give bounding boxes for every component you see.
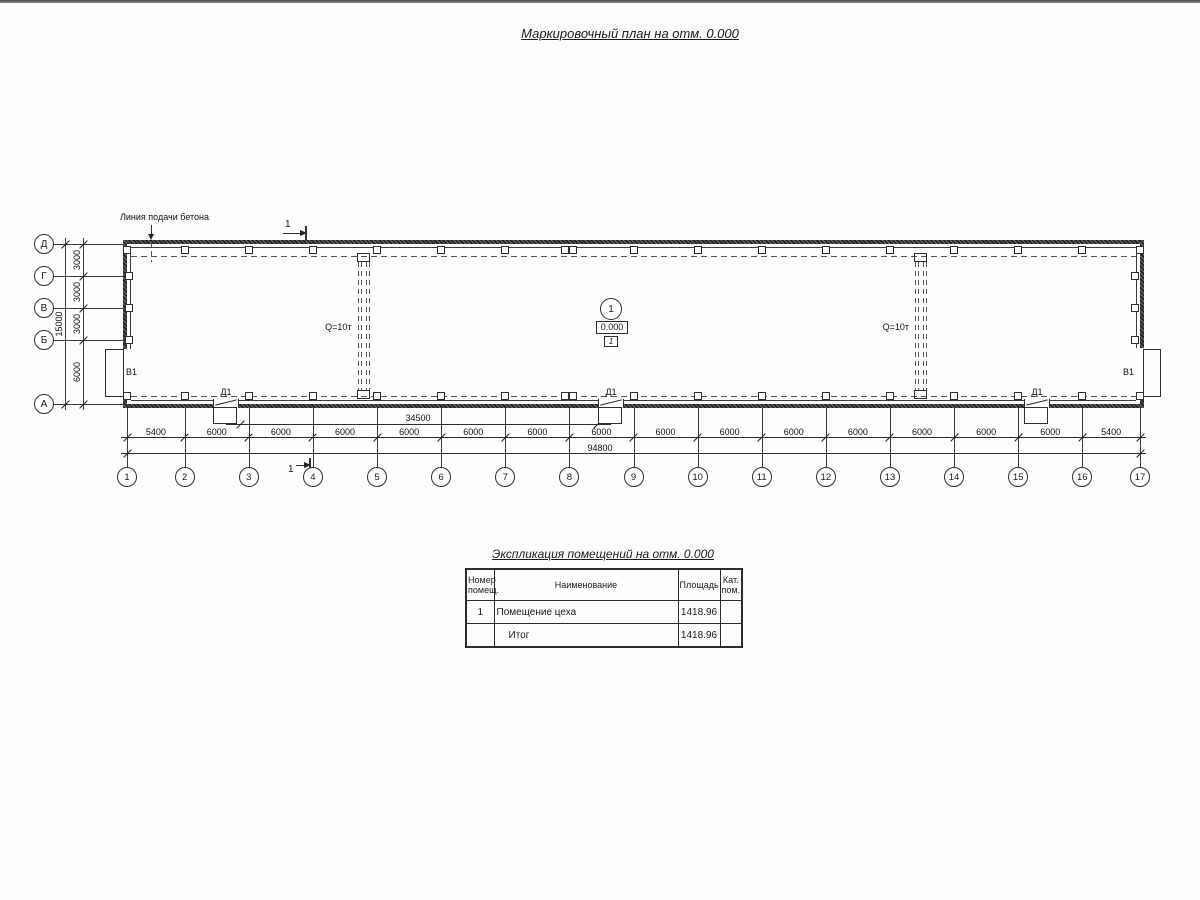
column-square bbox=[561, 246, 569, 254]
table-cell-category bbox=[720, 624, 742, 648]
column-square bbox=[886, 392, 894, 400]
column-square bbox=[561, 392, 569, 400]
door-porch bbox=[1024, 407, 1048, 424]
dim-text-doors: 34500 bbox=[388, 413, 448, 423]
column-square bbox=[373, 246, 381, 254]
axis-bubble-number: 7 bbox=[495, 467, 515, 487]
dim-line-doors bbox=[226, 424, 611, 425]
axis-bubble-number: 5 bbox=[367, 467, 387, 487]
table-row: Итог1418.96 bbox=[466, 624, 742, 648]
door-porch bbox=[598, 407, 622, 424]
axis-bubble-number: 4 bbox=[303, 467, 323, 487]
col-header-number: Номер помещ. bbox=[466, 569, 494, 601]
column-square bbox=[694, 246, 702, 254]
column-square-right-wall bbox=[1131, 272, 1139, 280]
door-jamb bbox=[623, 399, 624, 408]
crane-rail-top bbox=[131, 256, 1136, 257]
column-square bbox=[437, 246, 445, 254]
dim-text-total: 94800 bbox=[567, 443, 633, 453]
axis-bubble-number: 17 bbox=[1130, 467, 1150, 487]
dim-text-left: 3000 bbox=[72, 304, 82, 344]
concrete-line-arrow-head bbox=[148, 234, 154, 240]
crane-end-truck bbox=[914, 390, 927, 399]
column-square bbox=[758, 246, 766, 254]
explication-table: Номер помещ. Наименование Площадь Кат. п… bbox=[465, 568, 743, 648]
explication-title: Экспликация помещений на отм. 0.000 bbox=[465, 547, 741, 561]
concrete-line-dashed bbox=[151, 242, 152, 262]
door-jamb bbox=[238, 399, 239, 408]
crane-bridge-dashed bbox=[358, 262, 359, 390]
col-header-category: Кат. пом. bbox=[720, 569, 742, 601]
column-square bbox=[501, 246, 509, 254]
column-square bbox=[373, 392, 381, 400]
door-label: Д1 bbox=[206, 387, 246, 397]
crane-bridge-dashed bbox=[918, 262, 919, 390]
section-mark-bottom-label: 1 bbox=[288, 464, 294, 475]
axis-bubble-number: 10 bbox=[688, 467, 708, 487]
column-square bbox=[1078, 246, 1086, 254]
room-number-bubble: 1 bbox=[600, 298, 622, 320]
column-square bbox=[123, 246, 131, 254]
axis-bubble-number: 9 bbox=[624, 467, 644, 487]
crane-bridge-dashed bbox=[361, 262, 362, 390]
dim-text-bay: 6000 bbox=[774, 427, 814, 437]
column-square bbox=[123, 392, 131, 400]
axis-bubble-number: 16 bbox=[1072, 467, 1092, 487]
crane-label: Q=10т bbox=[859, 322, 909, 332]
crane-end-truck bbox=[914, 253, 927, 262]
dim-text-bay: 6000 bbox=[646, 427, 686, 437]
plan-title: Маркировочный план на отм. 0.000 bbox=[420, 26, 840, 41]
column-square bbox=[950, 246, 958, 254]
col-header-area: Площадь bbox=[678, 569, 720, 601]
column-square bbox=[309, 392, 317, 400]
wall-left bbox=[123, 240, 127, 349]
column-square bbox=[886, 246, 894, 254]
column-square bbox=[822, 246, 830, 254]
column-square bbox=[758, 392, 766, 400]
axis-line-letter bbox=[54, 340, 123, 341]
window-top-edge bbox=[0, 0, 1200, 3]
door-label: Д1 bbox=[1017, 387, 1057, 397]
column-square bbox=[694, 392, 702, 400]
table-cell-area: 1418.96 bbox=[678, 601, 720, 624]
gate-label-left: В1 bbox=[126, 367, 137, 377]
dim-text-bay: 6000 bbox=[581, 427, 621, 437]
column-square-left-wall bbox=[125, 272, 133, 280]
table-cell-category bbox=[720, 601, 742, 624]
dim-text-bay: 6000 bbox=[902, 427, 942, 437]
axis-bubble-number: 12 bbox=[816, 467, 836, 487]
door-porch bbox=[213, 407, 237, 424]
wall-bottom-inner-line bbox=[131, 400, 1136, 401]
table-cell-name: Итог bbox=[494, 624, 678, 648]
gate-ramp-left bbox=[105, 349, 124, 397]
crane-bridge-dashed bbox=[915, 262, 916, 390]
axis-bubble-number: 2 bbox=[175, 467, 195, 487]
dim-line-left-total bbox=[65, 238, 66, 410]
dim-text-bay: 6000 bbox=[517, 427, 557, 437]
axis-line-letter bbox=[54, 308, 123, 309]
axis-bubble-letter: В bbox=[34, 298, 54, 318]
wall-left-inner-line bbox=[130, 248, 131, 349]
door-jamb bbox=[1049, 399, 1050, 408]
elevation-box: 0.000 bbox=[596, 321, 628, 334]
axis-bubble-letter: Г bbox=[34, 266, 54, 286]
column-square bbox=[1136, 392, 1144, 400]
crane-end-truck bbox=[357, 390, 370, 399]
column-square-right-wall bbox=[1131, 336, 1139, 344]
table-cell-name: Помещение цеха bbox=[494, 601, 678, 624]
axis-bubble-number: 15 bbox=[1008, 467, 1028, 487]
col-header-name: Наименование bbox=[494, 569, 678, 601]
column-square bbox=[569, 246, 577, 254]
column-square bbox=[1014, 246, 1022, 254]
concrete-line-label: Линия подачи бетона bbox=[120, 212, 209, 222]
column-square bbox=[437, 392, 445, 400]
dim-text-bay: 6000 bbox=[966, 427, 1006, 437]
dim-text-bay: 6000 bbox=[389, 427, 429, 437]
section-mark-top-bar bbox=[305, 226, 307, 241]
column-square-left-wall bbox=[125, 336, 133, 344]
column-square bbox=[630, 246, 638, 254]
column-square bbox=[309, 246, 317, 254]
column-square bbox=[569, 392, 577, 400]
dim-text-left: 6000 bbox=[72, 352, 82, 392]
column-square bbox=[501, 392, 509, 400]
drawing-canvas: Маркировочный план на отм. 0.000 В1 В1 Л… bbox=[0, 0, 1200, 900]
explication-block: Экспликация помещений на отм. 0.000 Номе… bbox=[465, 547, 741, 648]
axis-bubble-number: 13 bbox=[880, 467, 900, 487]
dim-text-bay: 6000 bbox=[261, 427, 301, 437]
dim-text-bay: 5400 bbox=[1091, 427, 1131, 437]
dim-text-left-total: 15000 bbox=[54, 304, 64, 344]
axis-bubble-number: 1 bbox=[117, 467, 137, 487]
column-square bbox=[1078, 392, 1086, 400]
axis-bubble-number: 8 bbox=[559, 467, 579, 487]
door-label: Д1 bbox=[591, 387, 631, 397]
wall-right-inner-line bbox=[1136, 248, 1137, 348]
room-category-box: 1 bbox=[604, 336, 618, 347]
axis-line-letter bbox=[54, 276, 123, 277]
dim-text-bay: 6000 bbox=[197, 427, 237, 437]
column-square-left-wall bbox=[125, 304, 133, 312]
dim-line-left-bays bbox=[83, 238, 84, 410]
axis-bubble-number: 6 bbox=[431, 467, 451, 487]
wall-right bbox=[1140, 240, 1144, 348]
column-square bbox=[822, 392, 830, 400]
dim-text-bay: 6000 bbox=[325, 427, 365, 437]
axis-bubble-letter: Д bbox=[34, 234, 54, 254]
concrete-line-arrow-shaft bbox=[151, 225, 152, 234]
table-cell-area: 1418.96 bbox=[678, 624, 720, 648]
table-cell-number: 1 bbox=[466, 601, 494, 624]
axis-bubble-letter: Б bbox=[34, 330, 54, 350]
section-mark-top-label: 1 bbox=[285, 219, 291, 230]
axis-bubble-number: 14 bbox=[944, 467, 964, 487]
axis-bubble-letter: А bbox=[34, 394, 54, 414]
dim-text-bay: 6000 bbox=[453, 427, 493, 437]
dim-text-bay: 6000 bbox=[710, 427, 750, 437]
column-square bbox=[950, 392, 958, 400]
axis-bubble-number: 3 bbox=[239, 467, 259, 487]
dim-text-bay: 5400 bbox=[136, 427, 176, 437]
crane-end-truck bbox=[357, 253, 370, 262]
dim-text-bay: 6000 bbox=[838, 427, 878, 437]
crane-bridge-dashed bbox=[369, 262, 370, 390]
column-square bbox=[1136, 246, 1144, 254]
dim-text-bay: 6000 bbox=[1030, 427, 1070, 437]
crane-bridge-dashed bbox=[923, 262, 924, 390]
gate-label-right: В1 bbox=[1116, 367, 1134, 377]
column-square bbox=[181, 392, 189, 400]
column-square-right-wall bbox=[1131, 304, 1139, 312]
crane-bridge-dashed bbox=[366, 262, 367, 390]
axis-bubble-number: 11 bbox=[752, 467, 772, 487]
column-square bbox=[245, 246, 253, 254]
table-cell-number bbox=[466, 624, 494, 648]
wall-top bbox=[123, 240, 1144, 244]
crane-label: Q=10т bbox=[302, 322, 352, 332]
column-square bbox=[245, 392, 253, 400]
table-row: 1Помещение цеха1418.96 bbox=[466, 601, 742, 624]
crane-bridge-dashed bbox=[926, 262, 927, 390]
column-square bbox=[181, 246, 189, 254]
gate-ramp-right bbox=[1143, 349, 1161, 397]
